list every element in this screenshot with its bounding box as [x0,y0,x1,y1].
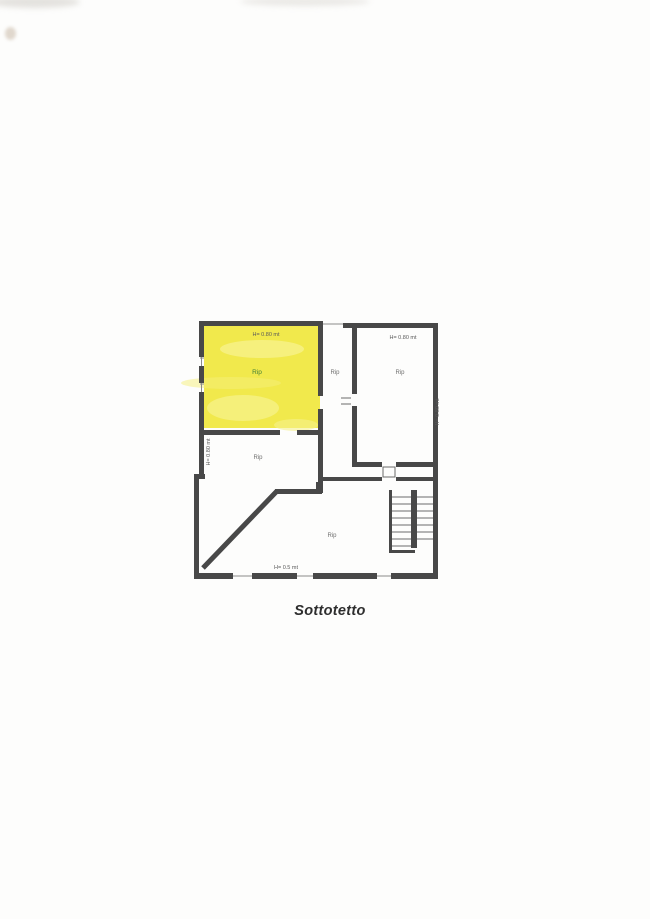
door-threshold [383,467,395,477]
room-label-right-room: Rip [395,370,405,376]
plan-title: Sottotetto [270,603,390,619]
door-ticks [341,398,351,404]
annotation-left-wall-height: H= 0.80 mt [206,438,212,466]
room-label-bottom-room: Rip [327,533,337,539]
scanned-page: Rip Rip Rip Rip Rip H= 0.80 mt H= 0.80 m… [0,0,650,919]
room-label-corridor: Rip [330,370,340,376]
room-label-left-middle-room: Rip [253,455,263,461]
room-label-yellow-room: Rip [252,369,262,376]
diagonal-wall [203,491,277,568]
annotation-right-wall-height: H= 0.80 mt [435,398,441,426]
floor-plan-drawing: Rip Rip Rip Rip Rip H= 0.80 mt H= 0.80 m… [0,0,650,919]
annotation-bottom-height: H= 0.5 mt [274,565,298,571]
annotation-right-room-height: H= 0.80 mt [389,335,417,341]
annotation-yellow-room-height: H= 0.80 mt [252,332,280,338]
